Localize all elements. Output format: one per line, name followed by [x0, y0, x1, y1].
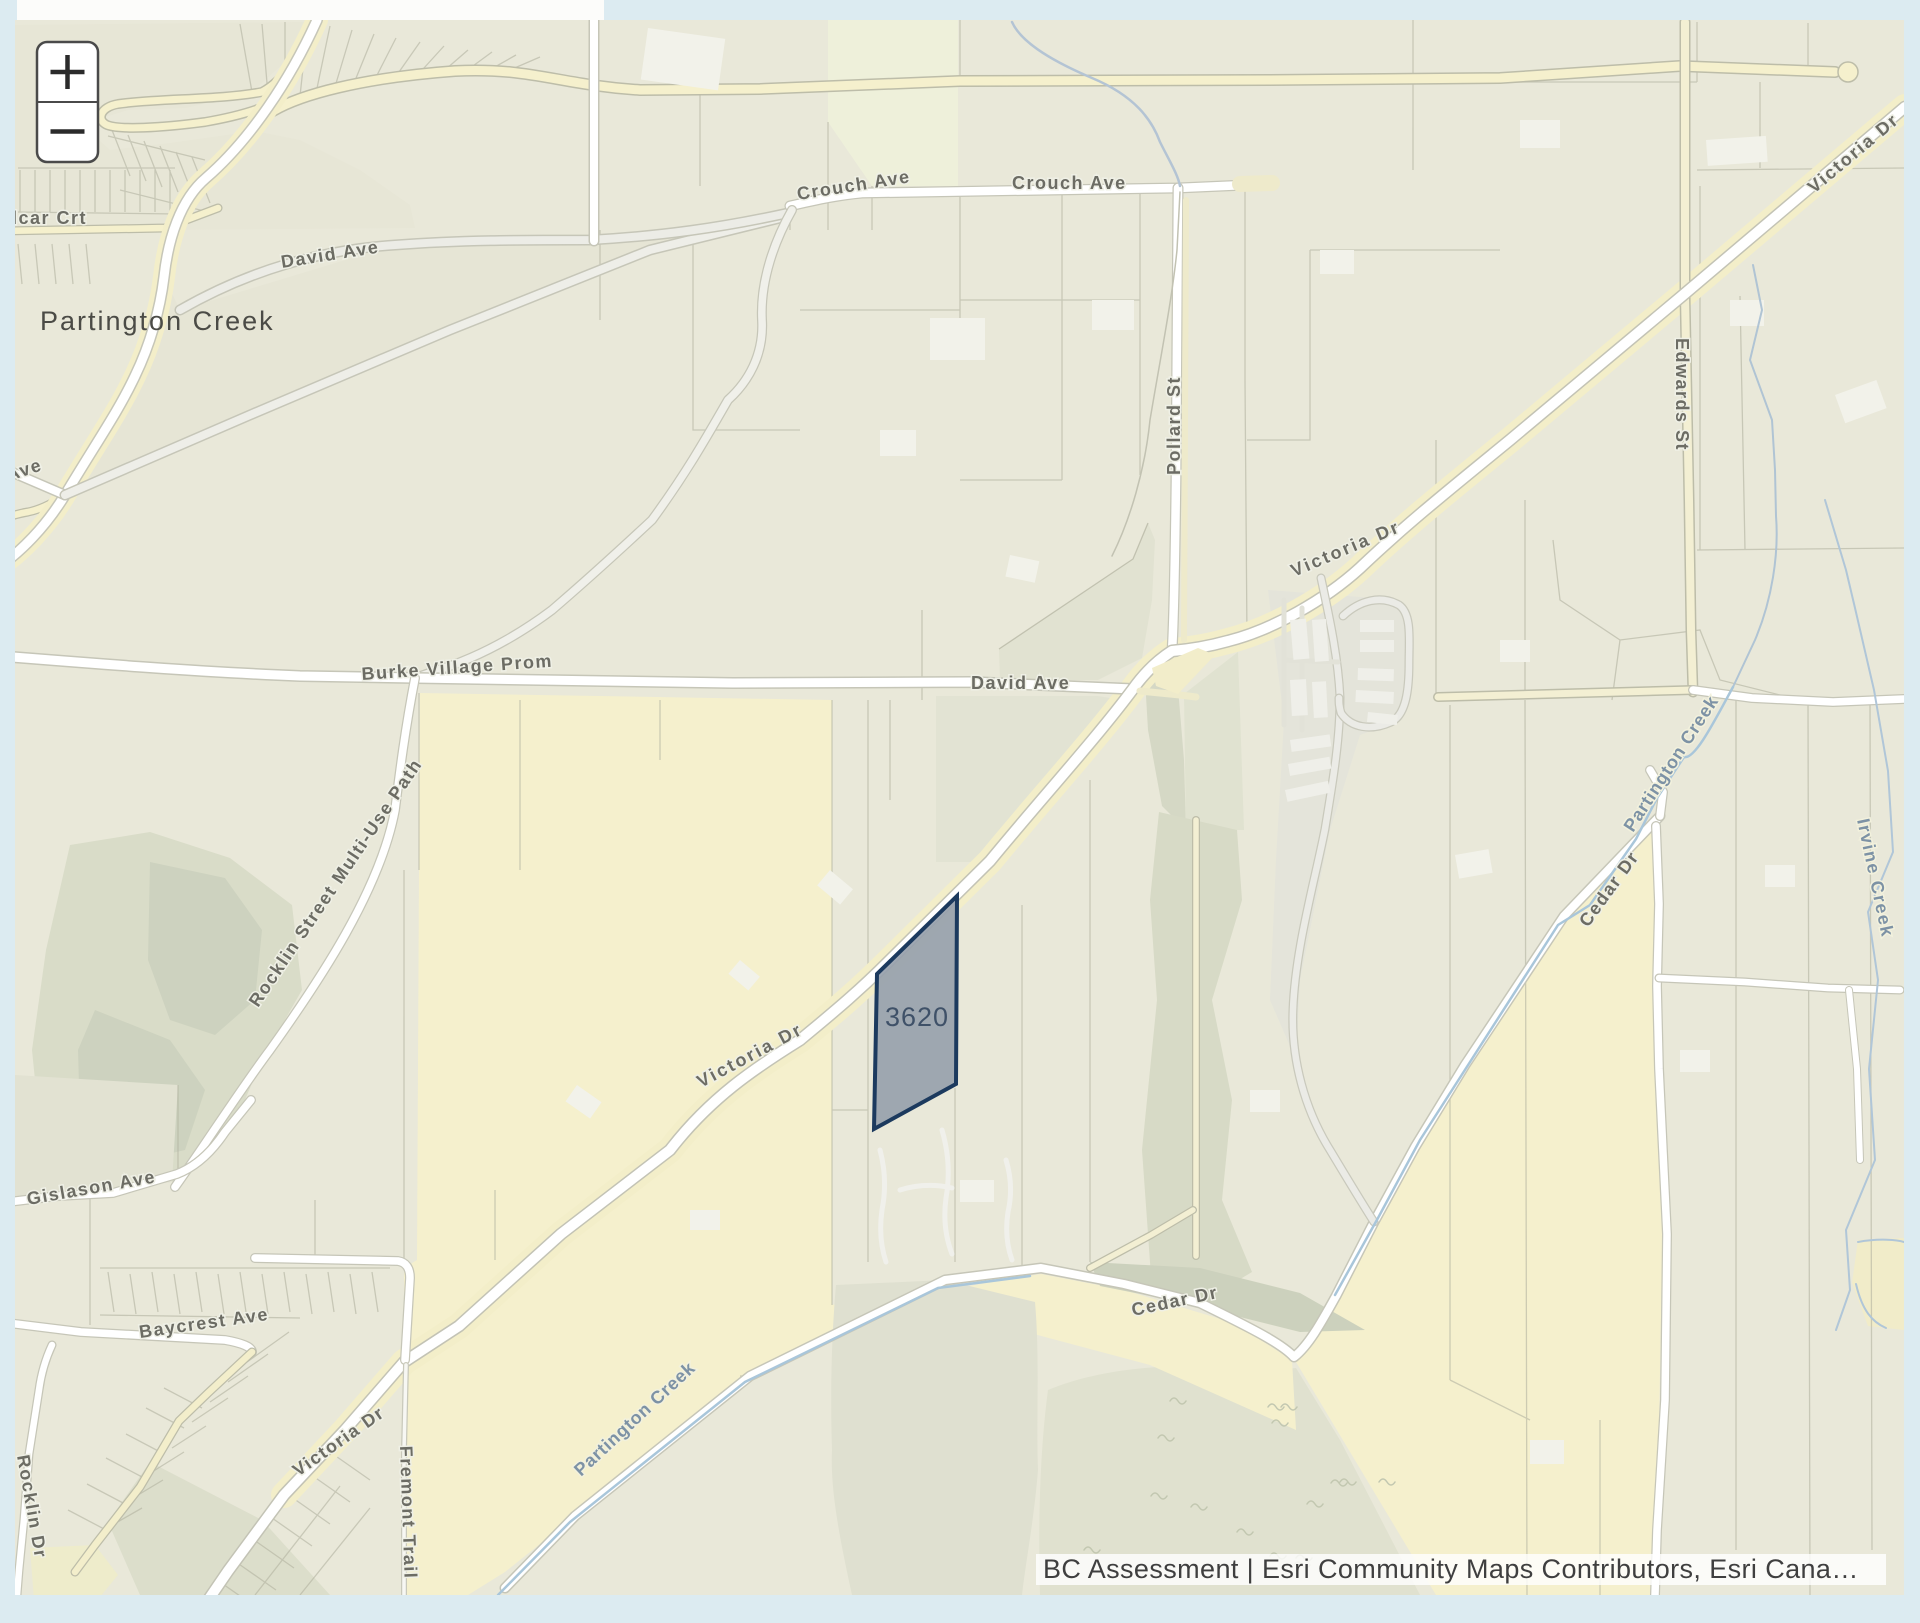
svg-text:Pollard St: Pollard St — [1164, 376, 1184, 475]
svg-text:David Ave: David Ave — [971, 673, 1070, 693]
svg-text:Partington Creek: Partington Creek — [40, 306, 275, 336]
svg-text:3620: 3620 — [885, 1002, 949, 1032]
svg-text:Crouch Ave: Crouch Ave — [1012, 173, 1127, 193]
svg-text:BC Assessment | Esri Community: BC Assessment | Esri Community Maps Cont… — [1043, 1554, 1859, 1584]
svg-text:Edwards St: Edwards St — [1672, 338, 1692, 451]
svg-text:lcar Crt: lcar Crt — [12, 208, 87, 228]
